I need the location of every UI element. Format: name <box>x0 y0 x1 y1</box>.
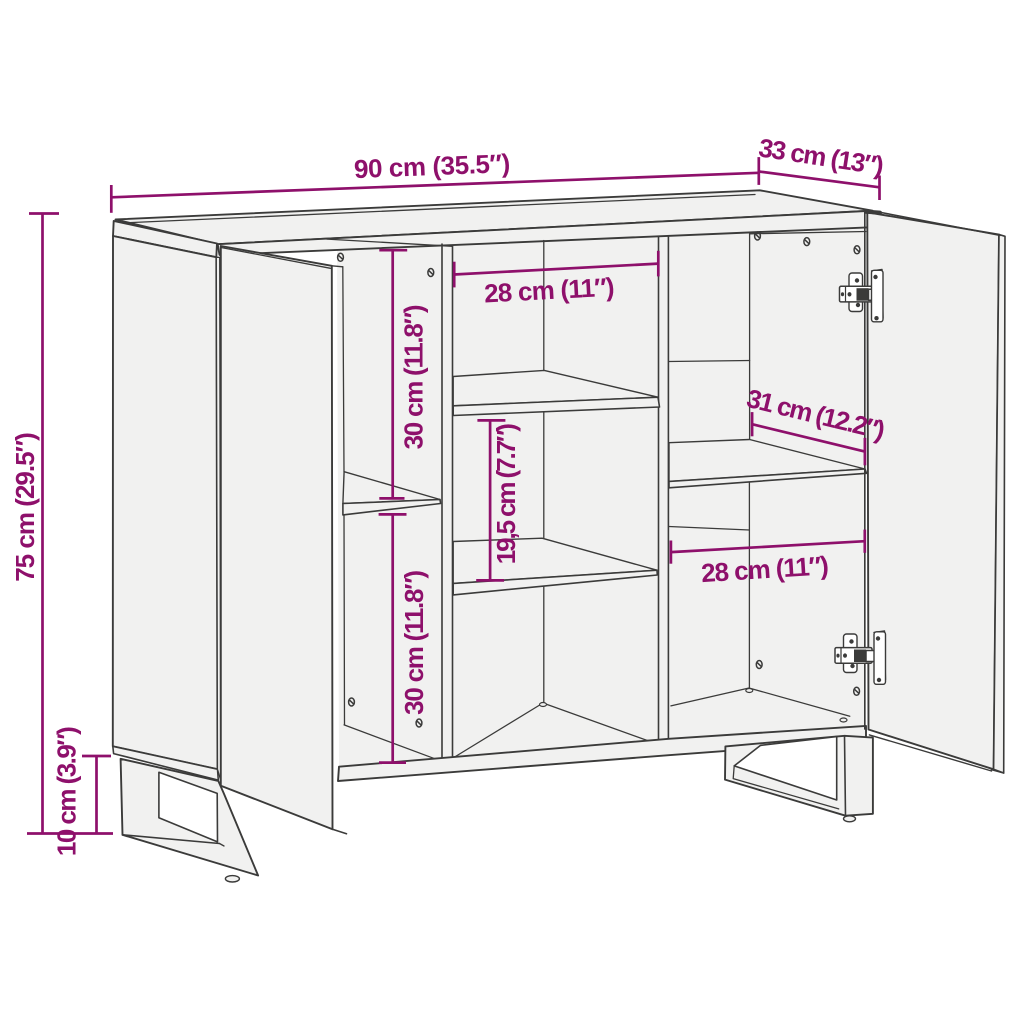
svg-text:19,5 cm (7.7″): 19,5 cm (7.7″) <box>491 424 521 565</box>
svg-text:90 cm (35.5″): 90 cm (35.5″) <box>353 148 510 184</box>
svg-text:75 cm (29.5″): 75 cm (29.5″) <box>10 433 40 582</box>
svg-text:30 cm (11.8″): 30 cm (11.8″) <box>399 571 429 715</box>
svg-text:30 cm (11.8″): 30 cm (11.8″) <box>399 305 429 449</box>
svg-text:10 cm (3.9″): 10 cm (3.9″) <box>52 727 82 856</box>
